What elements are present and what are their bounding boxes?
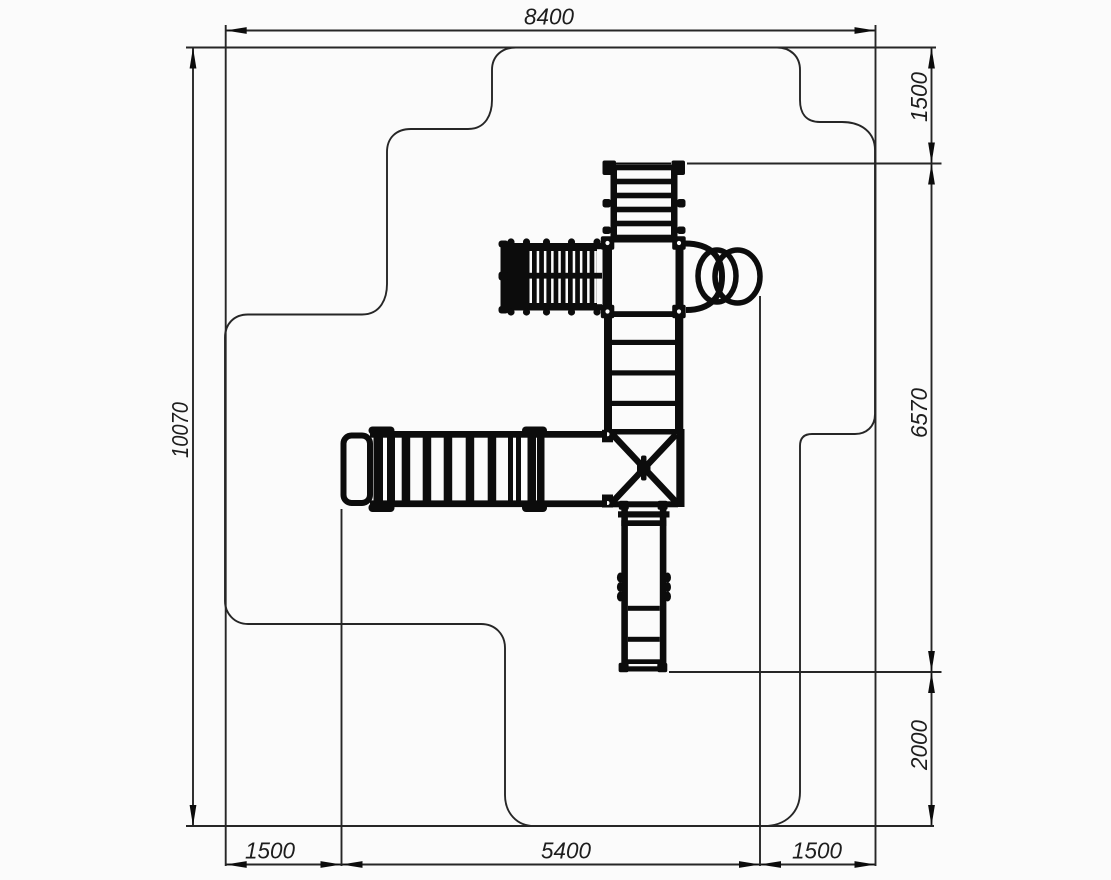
svg-text:8400: 8400 [524, 4, 574, 30]
svg-text:10070: 10070 [167, 402, 193, 458]
svg-text:1500: 1500 [245, 838, 295, 864]
svg-text:5400: 5400 [541, 838, 591, 864]
svg-text:1500: 1500 [792, 838, 842, 864]
svg-text:6570: 6570 [906, 388, 932, 438]
svg-text:2000: 2000 [906, 720, 932, 771]
svg-text:1500: 1500 [906, 72, 932, 122]
